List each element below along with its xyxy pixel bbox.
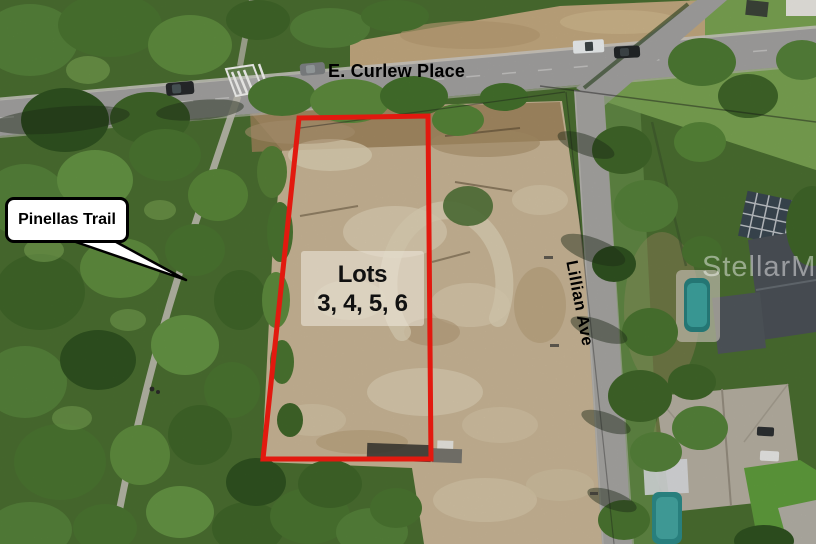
pinellas-trail-callout: Pinellas Trail [5,197,129,243]
aerial-listing-photo: E. Curlew Place Pinellas Trail Lots 3, 4… [0,0,816,544]
lots-label-line1: Lots [338,260,387,289]
lots-label-line2: 3, 4, 5, 6 [317,289,407,318]
stellar-mls-watermark: StellarMLS [702,251,816,284]
pinellas-trail-callout-text: Pinellas Trail [18,211,116,229]
street-label-e-curlew-place: E. Curlew Place [328,61,465,82]
lots-label: Lots 3, 4, 5, 6 [301,251,424,326]
